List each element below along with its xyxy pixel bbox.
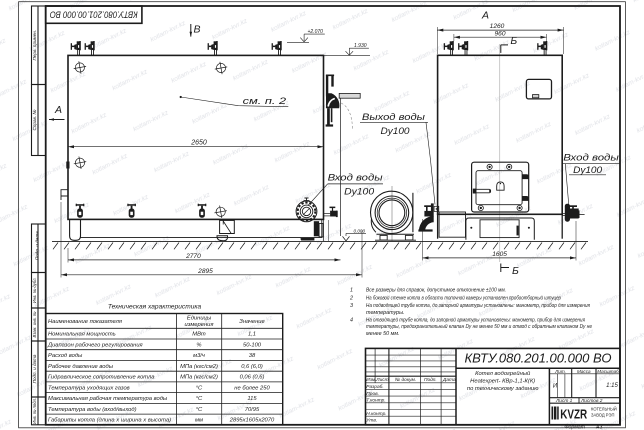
svg-text:А: А — [54, 104, 62, 116]
svg-text:Б: Б — [512, 265, 519, 277]
svg-text:температуры.: температуры. — [366, 310, 405, 316]
svg-text:Масса: Масса — [577, 369, 591, 374]
svg-text:Дата: Дата — [442, 377, 456, 383]
svg-text:Н.контр.: Н.контр. — [366, 411, 386, 417]
svg-text:менее 50 мм.: менее 50 мм. — [366, 331, 400, 337]
svg-text:Лист 1: Лист 1 — [555, 398, 573, 404]
svg-text:70/95: 70/95 — [245, 407, 260, 413]
svg-text:Изм.: Изм. — [366, 377, 376, 383]
svg-text:А: А — [481, 10, 489, 22]
svg-text:0.000: 0.000 — [354, 228, 366, 233]
svg-text:Наименование показателя: Наименование показателя — [48, 319, 122, 325]
svg-text:Выход воды: Выход воды — [362, 112, 425, 122]
svg-text:Dy100: Dy100 — [344, 187, 375, 197]
svg-text:0,6 (6,0): 0,6 (6,0) — [241, 364, 263, 370]
svg-text:Температура уходящих газов: Температура уходящих газов — [48, 385, 130, 391]
svg-text:2650: 2650 — [190, 140, 207, 147]
svg-text:Номинальная мощность: Номинальная мощность — [48, 332, 116, 338]
svg-text:Техническая характеристика: Техническая характеристика — [108, 304, 202, 311]
svg-text:1: 1 — [350, 288, 353, 294]
svg-text:МПа (кгс/см2): МПа (кгс/см2) — [180, 375, 218, 381]
svg-text:Heatexpert- КВр-1,1-К(К): Heatexpert- КВр-1,1-К(К) — [470, 379, 535, 385]
svg-text:МПа (кгс/см2): МПа (кгс/см2) — [180, 364, 218, 370]
svg-text:по техническому заданию: по техническому заданию — [467, 386, 539, 392]
svg-text:Подп.: Подп. — [424, 377, 437, 383]
svg-text:3: 3 — [350, 303, 353, 309]
svg-text:Т.контр.: Т.контр. — [366, 398, 385, 404]
svg-text:Все размеры для справок, допус: Все размеры для справок, допустимое откл… — [366, 288, 506, 294]
svg-text:На боковой стенке котла в обла: На боковой стенке котла в области топочн… — [366, 294, 561, 301]
svg-text:ЗАВОД РЭП: ЗАВОД РЭП — [591, 413, 614, 418]
svg-text:960: 960 — [494, 30, 505, 37]
svg-text:°С: °С — [196, 407, 203, 413]
svg-text:2770: 2770 — [185, 253, 201, 260]
svg-text:№ докум.: № докум. — [395, 377, 416, 383]
svg-text:МВт: МВт — [192, 332, 206, 338]
svg-text:4: 4 — [350, 318, 353, 324]
svg-text:2895: 2895 — [197, 268, 213, 275]
svg-text:Гидравлическое сопротивление к: Гидравлическое сопротивление котла — [48, 375, 155, 381]
svg-text:1260: 1260 — [490, 23, 505, 30]
svg-text:0,06 (0,6): 0,06 (0,6) — [240, 375, 265, 381]
svg-text:температуры, предохранительный: температуры, предохранительный клапан Dу… — [366, 323, 592, 330]
svg-text:1605: 1605 — [492, 251, 507, 258]
svg-text:мм: мм — [195, 418, 203, 424]
svg-text:Вход воды: Вход воды — [328, 173, 383, 183]
svg-text:Листов 2: Листов 2 — [580, 398, 603, 404]
svg-text:38: 38 — [249, 353, 256, 359]
svg-text:Подп. и дата: Подп. и дата — [34, 231, 39, 260]
svg-text:Лист: Лист — [375, 377, 388, 383]
svg-text:Утв.: Утв. — [366, 418, 377, 424]
svg-text:Подп. и дата: Подп. и дата — [32, 354, 37, 383]
svg-text:м3/ч: м3/ч — [193, 353, 205, 359]
svg-text:Значение: Значение — [239, 319, 265, 325]
svg-text:Температура воды (вход/выход): Температура воды (вход/выход) — [48, 407, 137, 413]
svg-text:см. п. 2: см. п. 2 — [243, 96, 287, 106]
svg-text:Инв. № дубл.: Инв. № дубл. — [32, 277, 37, 303]
svg-text:2895х1605х2070: 2895х1605х2070 — [229, 418, 275, 424]
svg-text:Расход воды: Расход воды — [48, 353, 83, 359]
svg-text:Dy100: Dy100 — [573, 165, 603, 175]
svg-text:измерения: измерения — [184, 322, 213, 328]
svg-text:Инв. № подл.: Инв. № подл. — [32, 398, 37, 424]
svg-text:В: В — [194, 24, 201, 36]
svg-text:И: И — [553, 384, 558, 390]
svg-text:Dy100: Dy100 — [381, 126, 411, 136]
svg-text:Диапазон рабочего регулировани: Диапазон рабочего регулирования — [47, 342, 143, 348]
svg-text:°С: °С — [196, 385, 203, 391]
svg-text:Лит.: Лит. — [554, 369, 566, 374]
svg-text:1.930: 1.930 — [354, 43, 367, 49]
svg-text:На отводящей трубе котла, до з: На отводящей трубе котла, до запорной ар… — [366, 317, 585, 324]
svg-text:2: 2 — [349, 295, 353, 301]
svg-text:Пров.: Пров. — [366, 391, 379, 397]
svg-text:Котел водогрейный: Котел водогрейный — [475, 370, 531, 377]
svg-text:Формат: Формат — [564, 425, 585, 430]
svg-text:Вход воды: Вход воды — [563, 152, 619, 162]
svg-text:Габариты котла (длина х ширина: Габариты котла (длина х ширина х высота) — [48, 418, 171, 424]
svg-text:Взам. инв. №: Взам. инв. № — [32, 311, 37, 337]
svg-text:КОТЕЛЬНЫЙ: КОТЕЛЬНЫЙ — [591, 407, 617, 412]
svg-text:°С: °С — [196, 396, 203, 402]
svg-text:+2.070: +2.070 — [308, 29, 324, 35]
svg-text:50-100: 50-100 — [243, 342, 262, 348]
svg-text:Перв. примен.: Перв. примен. — [32, 30, 37, 61]
svg-text:KVZR: KVZR — [560, 406, 587, 421]
svg-text:Разраб.: Разраб. — [366, 384, 383, 390]
svg-text:Максимальная рабочая температу: Максимальная рабочая температура воды — [48, 396, 168, 402]
svg-text:Рабочее давление воды: Рабочее давление воды — [48, 364, 114, 370]
svg-text:КВТУ.080.201.00.000 ВО: КВТУ.080.201.00.000 ВО — [465, 351, 612, 366]
svg-text:не более 250: не более 250 — [234, 385, 270, 391]
svg-text:1:15: 1:15 — [606, 383, 618, 389]
svg-text:1,1: 1,1 — [248, 332, 256, 338]
svg-text:%: % — [196, 342, 201, 348]
svg-text:Справ. №: Справ. № — [32, 110, 37, 131]
svg-text:КВТУ.080.201.00.000 ВО: КВТУ.080.201.00.000 ВО — [50, 9, 138, 19]
svg-text:115: 115 — [247, 396, 257, 402]
svg-text:Б: Б — [510, 35, 517, 47]
svg-text:А3: А3 — [595, 425, 602, 430]
svg-text:Масштаб: Масштаб — [597, 369, 619, 374]
svg-text:Единицы: Единицы — [187, 316, 212, 322]
svg-text:На подводящей трубе котла, д: На подводящей трубе котла, до запорной а… — [366, 302, 590, 309]
